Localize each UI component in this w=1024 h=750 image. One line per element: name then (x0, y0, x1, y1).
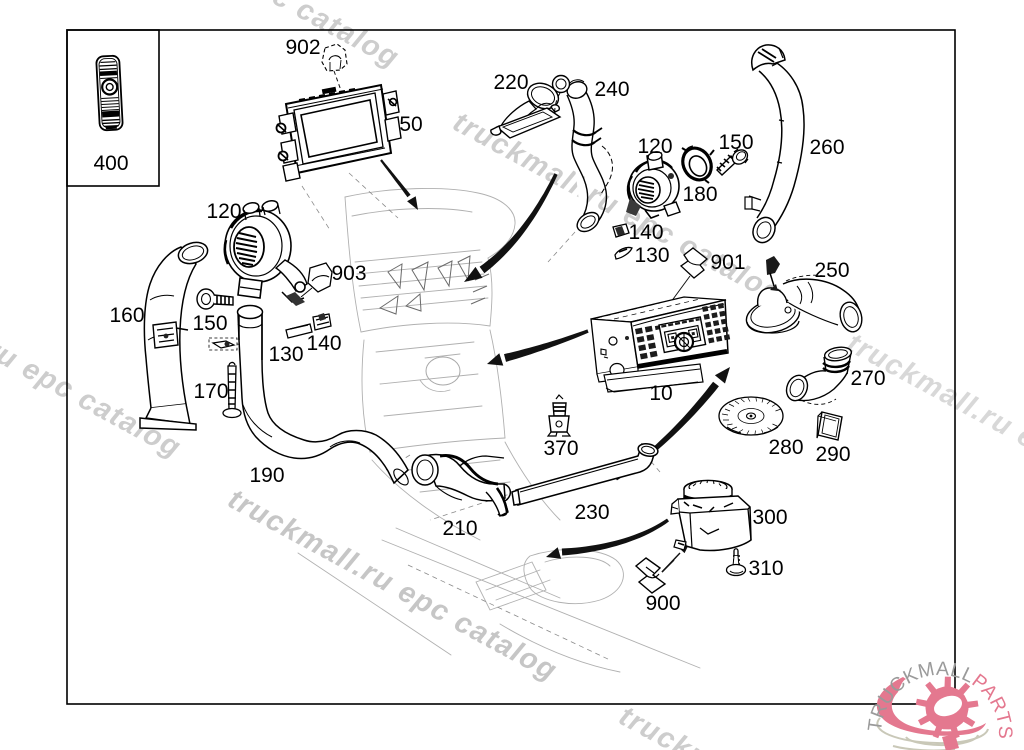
svg-text:170: 170 (193, 380, 228, 403)
svg-text:140: 140 (306, 332, 341, 355)
svg-text:310: 310 (748, 557, 783, 580)
svg-text:240: 240 (594, 78, 629, 101)
svg-text:50: 50 (399, 113, 422, 136)
svg-text:160: 160 (109, 304, 144, 327)
svg-text:120: 120 (206, 200, 241, 223)
svg-text:900: 900 (645, 592, 680, 615)
svg-text:902: 902 (285, 36, 320, 59)
svg-text:230: 230 (574, 501, 609, 524)
svg-text:370: 370 (543, 437, 578, 460)
svg-text:120: 120 (637, 135, 672, 158)
svg-text:190: 190 (249, 464, 284, 487)
svg-text:260: 260 (809, 136, 844, 159)
svg-text:140: 140 (628, 221, 663, 244)
svg-text:280: 280 (768, 436, 803, 459)
svg-text:300: 300 (752, 506, 787, 529)
svg-text:150: 150 (192, 312, 227, 335)
svg-text:250: 250 (814, 259, 849, 282)
svg-text:130: 130 (634, 244, 669, 267)
svg-text:210: 210 (442, 517, 477, 540)
svg-text:400: 400 (93, 152, 128, 175)
svg-text:220: 220 (493, 71, 528, 94)
svg-text:901: 901 (710, 251, 745, 274)
svg-text:150: 150 (718, 131, 753, 154)
svg-text:10: 10 (649, 382, 672, 405)
svg-text:290: 290 (815, 443, 850, 466)
svg-text:180: 180 (682, 183, 717, 206)
svg-text:270: 270 (850, 367, 885, 390)
svg-text:903: 903 (331, 262, 366, 285)
svg-text:130: 130 (268, 343, 303, 366)
